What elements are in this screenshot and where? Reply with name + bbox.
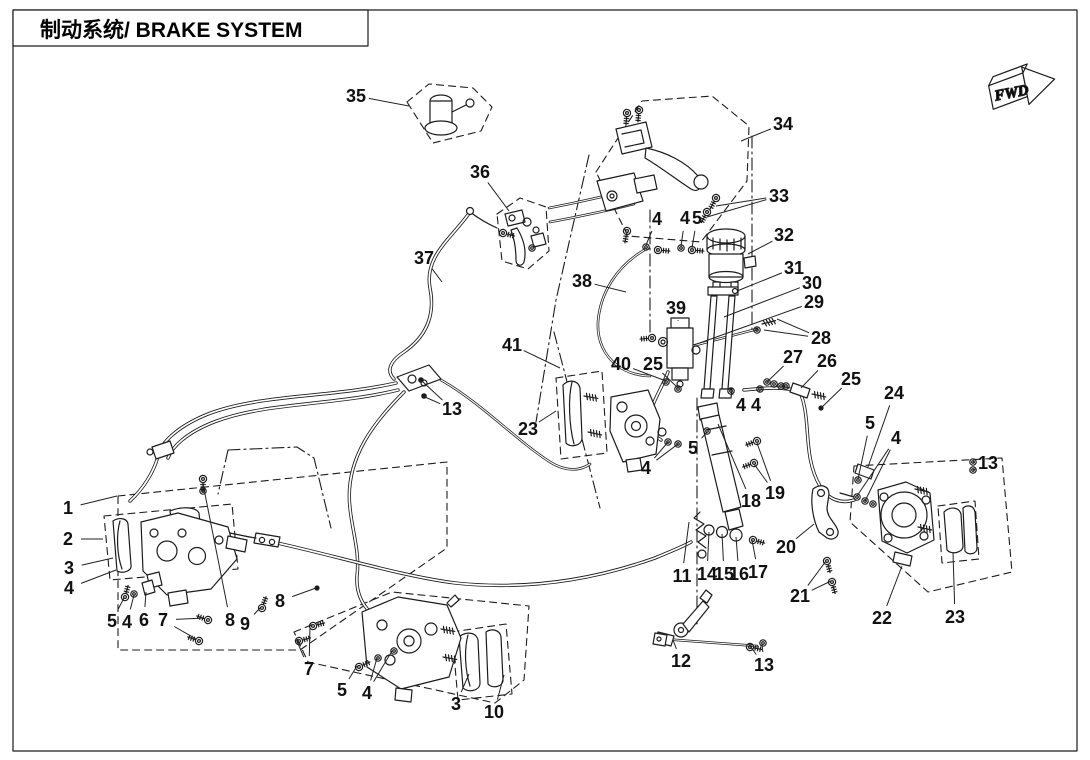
- part-callout-7: 7: [304, 659, 314, 679]
- callout-leader-5: [118, 598, 124, 610]
- part-callout-30: 30: [802, 273, 822, 293]
- callout-leader-31: [737, 273, 782, 291]
- part-callout-34: 34: [773, 114, 793, 134]
- part-callout-22: 22: [872, 608, 892, 628]
- page-frame: 制动系统/ BRAKE SYSTEM: [13, 10, 1077, 751]
- part-callout-32: 32: [774, 225, 794, 245]
- callout-leader-4: [81, 570, 116, 583]
- part-callout-5: 5: [688, 438, 698, 458]
- part-callout-4: 4: [64, 578, 74, 598]
- part-callout-24: 24: [884, 383, 904, 403]
- part-callout-23: 23: [945, 607, 965, 627]
- part-callout-19: 19: [765, 483, 785, 503]
- part-callout-13: 13: [442, 399, 462, 419]
- callout-leader-26: [801, 370, 818, 388]
- part-callout-13: 13: [754, 655, 774, 675]
- parts-diagram-page: 制动系统/ BRAKE SYSTEM FWD: [0, 0, 1090, 760]
- right-caliper-assembly: [840, 459, 977, 566]
- reservoir-assembly: [698, 193, 756, 398]
- part-callout-2: 2: [63, 529, 73, 549]
- part-35-bracket: [425, 95, 474, 135]
- callout-leader-4: [759, 390, 760, 392]
- part-callout-17: 17: [748, 562, 768, 582]
- part-callout-11: 11: [672, 566, 691, 586]
- brake-system-diagram: 制动系统/ BRAKE SYSTEM FWD: [0, 0, 1090, 760]
- part-callout-40: 40: [611, 354, 631, 374]
- callout-leader-35: [369, 98, 409, 106]
- part-callout-29: 29: [804, 292, 824, 312]
- part-callout-16: 16: [729, 564, 749, 584]
- part-callout-18: 18: [741, 491, 761, 511]
- part-callout-27: 27: [783, 347, 803, 367]
- callout-leader-19: [757, 443, 771, 481]
- part-callout-38: 38: [572, 271, 592, 291]
- part-callout-4: 4: [362, 683, 372, 703]
- part-callout-36: 36: [470, 162, 490, 182]
- part-callout-13: 13: [978, 453, 998, 473]
- callout-leader-13: [425, 397, 440, 404]
- callout-leader-21: [808, 561, 826, 586]
- part-callout-3: 3: [64, 558, 74, 578]
- part-callout-26: 26: [817, 351, 837, 371]
- part-callout-5: 5: [692, 208, 702, 228]
- part-callout-23: 23: [518, 419, 538, 439]
- callout-leader-8: [292, 588, 316, 597]
- part-callout-8: 8: [275, 591, 285, 611]
- part-callout-35: 35: [346, 86, 366, 106]
- callout-leader-5: [692, 231, 695, 248]
- part-callout-9: 9: [240, 614, 250, 634]
- part-callout-4: 4: [641, 458, 651, 478]
- part-36-mechanism: [467, 208, 547, 266]
- part-callout-4: 4: [122, 612, 132, 632]
- callout-leader-21: [812, 581, 831, 590]
- part-callout-8: 8: [225, 610, 235, 630]
- callout-leader-7: [174, 627, 196, 640]
- part-callout-4: 4: [736, 395, 746, 415]
- callout-leader-15: [722, 534, 723, 561]
- part-callout-25: 25: [841, 369, 861, 389]
- callout-leader-13: [762, 644, 763, 652]
- callout-leader-14: [708, 532, 709, 561]
- part-callout-41: 41: [502, 335, 522, 355]
- part-callout-25: 25: [643, 354, 663, 374]
- part-callout-20: 20: [776, 537, 796, 557]
- callout-leader-4: [681, 231, 683, 246]
- callout-leader-7: [309, 626, 310, 656]
- callout-leader-34: [741, 129, 771, 141]
- callout-leader-28: [777, 319, 809, 333]
- fwd-arrow: FWD: [986, 59, 1058, 111]
- part-callout-5: 5: [337, 680, 347, 700]
- part-callout-3: 3: [451, 694, 461, 714]
- page-border: [13, 10, 1077, 751]
- callout-leader-12: [673, 640, 676, 649]
- callout-leader-23: [953, 553, 955, 604]
- part-callout-33: 33: [769, 186, 789, 206]
- part-callout-28: 28: [811, 328, 831, 348]
- part-callout-37: 37: [414, 248, 434, 268]
- callout-leader-27: [767, 366, 784, 382]
- part-callout-6: 6: [139, 610, 149, 630]
- page-title: 制动系统/ BRAKE SYSTEM: [40, 18, 303, 42]
- callout-leader-28: [764, 330, 808, 336]
- part-callout-10: 10: [484, 702, 504, 722]
- part-callout-7: 7: [158, 610, 168, 630]
- part-callout-4: 4: [680, 208, 690, 228]
- callout-leader-36: [488, 182, 509, 211]
- part-callout-5: 5: [865, 413, 875, 433]
- part-callout-5: 5: [107, 611, 117, 631]
- part-callout-12: 12: [671, 651, 691, 671]
- callout-leader-1: [81, 496, 117, 505]
- callout-leader-22: [887, 566, 902, 606]
- part-callout-4: 4: [652, 209, 662, 229]
- callout-leader-20: [796, 524, 814, 539]
- callout-leader-37: [432, 268, 442, 282]
- bottom-caliper-assembly: [230, 533, 503, 702]
- part-callout-1: 1: [63, 498, 73, 518]
- callout-layer: 3536373433323130292839384025414452345181…: [63, 86, 998, 722]
- brake-lever-assembly: [597, 106, 708, 255]
- part-callout-21: 21: [790, 586, 810, 606]
- part-callout-4: 4: [891, 428, 901, 448]
- part-callout-4: 4: [751, 395, 761, 415]
- callout-leader-23: [539, 411, 556, 422]
- callout-leader-41: [524, 351, 560, 368]
- part-callout-39: 39: [666, 298, 686, 318]
- rear-master-cylinder: [653, 403, 766, 653]
